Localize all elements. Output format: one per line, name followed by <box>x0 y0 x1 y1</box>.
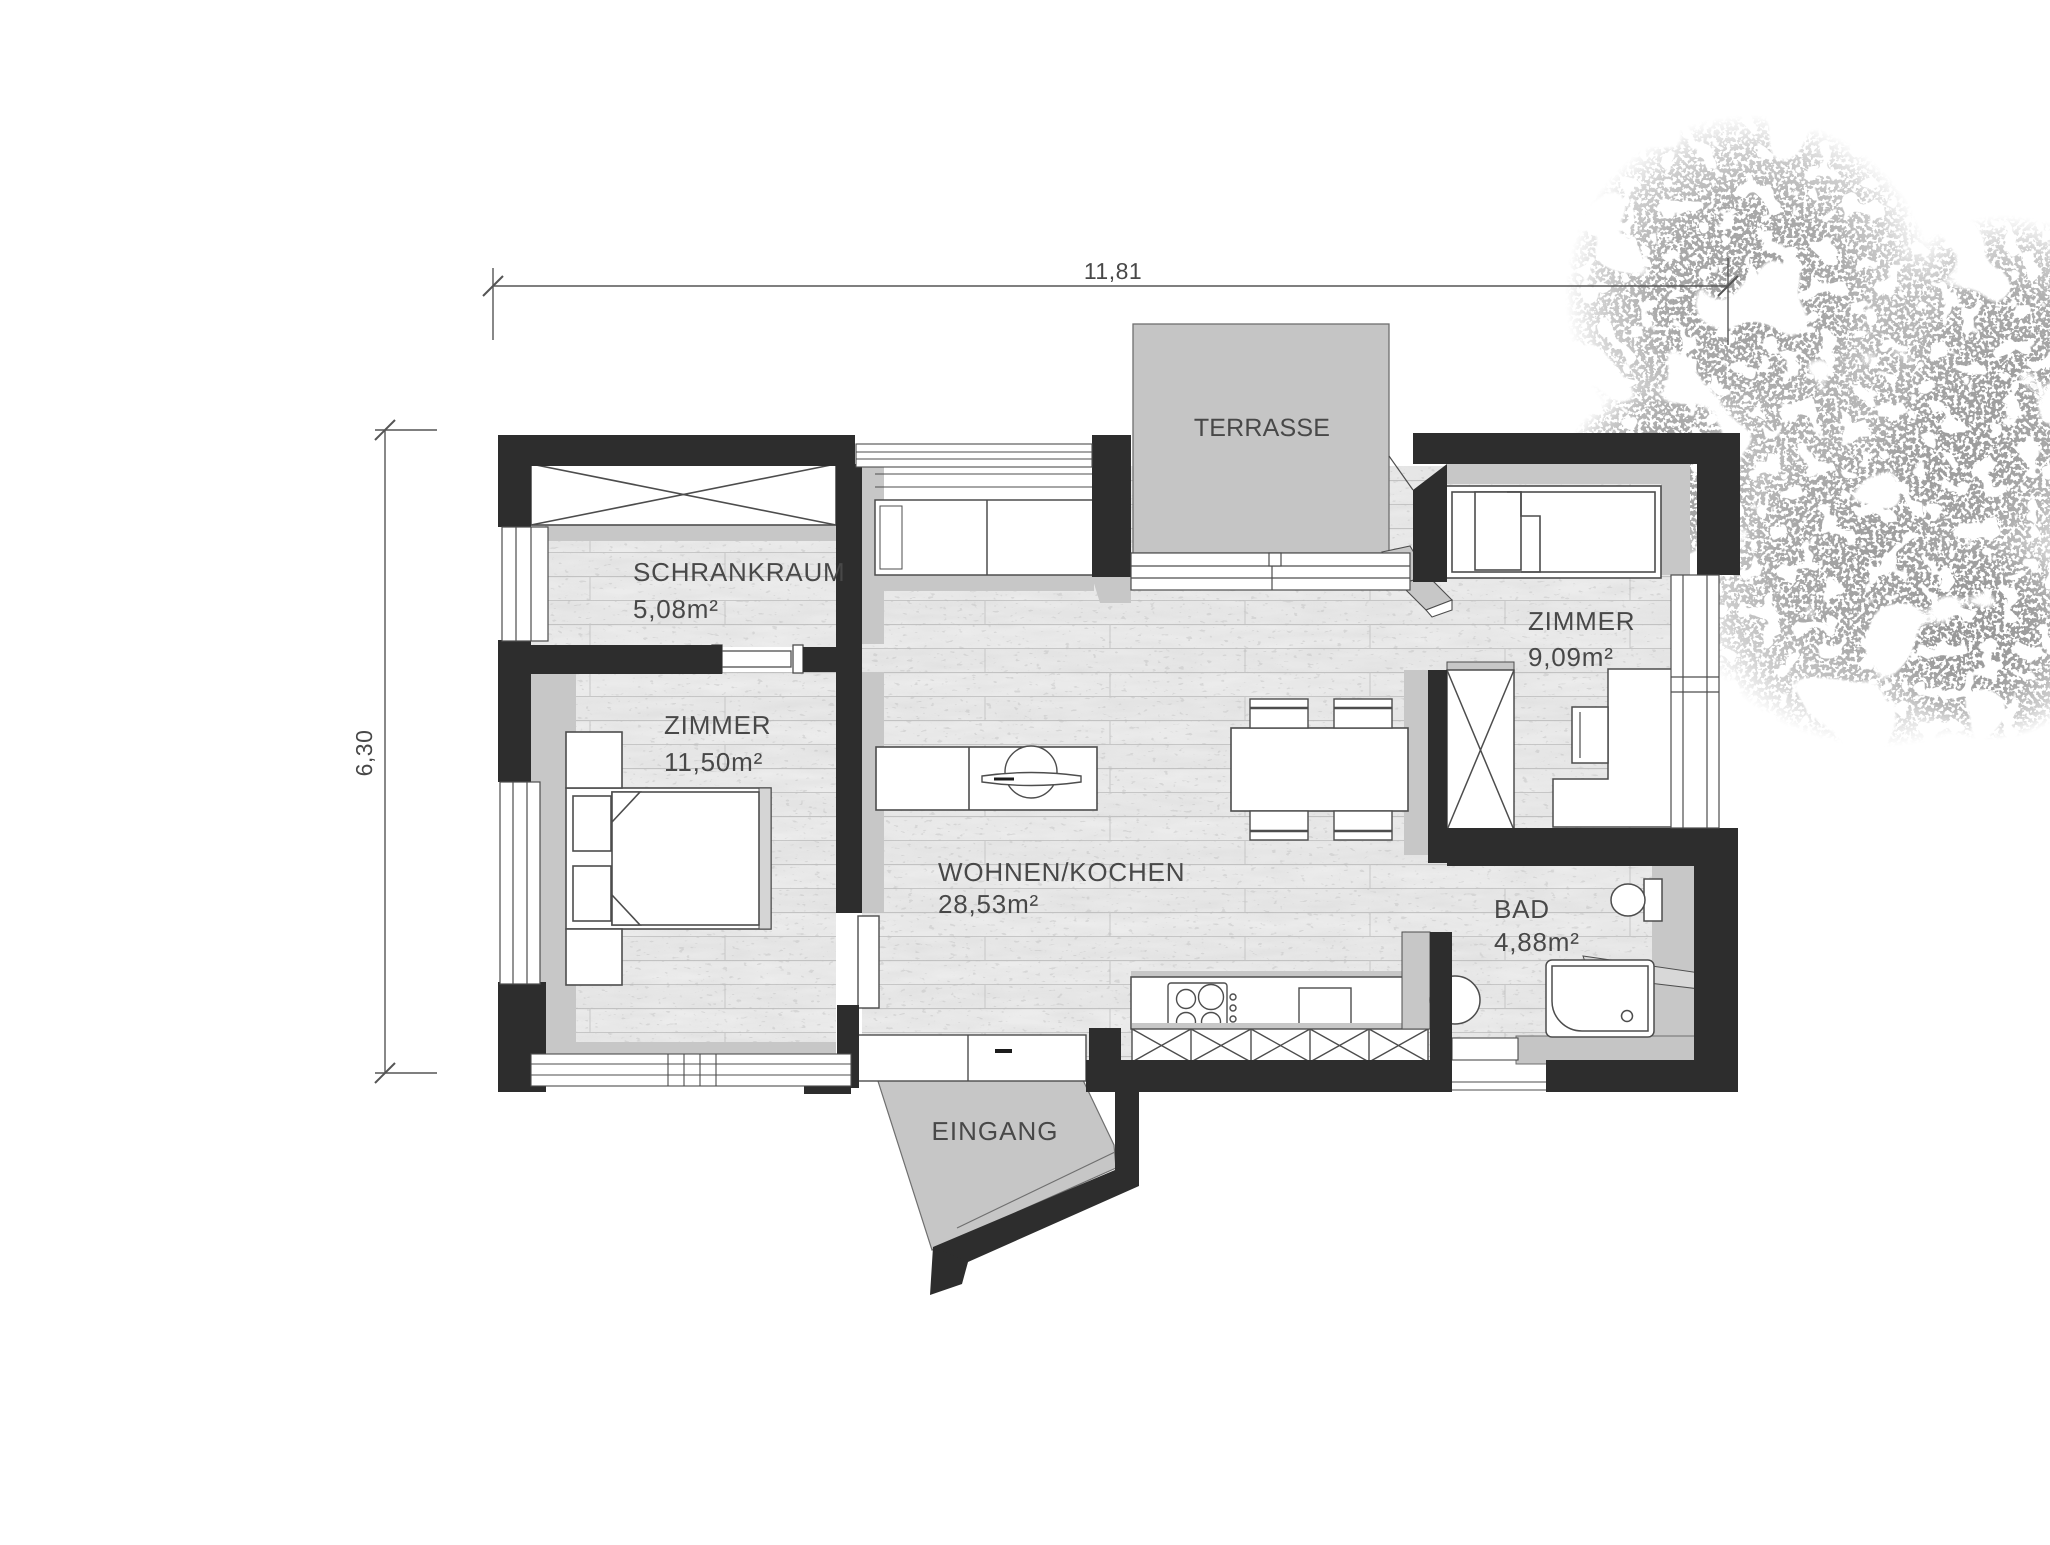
svg-text:BAD: BAD <box>1494 894 1550 924</box>
svg-text:5,08m²: 5,08m² <box>633 594 719 624</box>
svg-text:TERRASSE: TERRASSE <box>1194 414 1330 442</box>
svg-text:9,09m²: 9,09m² <box>1528 642 1614 672</box>
svg-text:SCHRANKRAUM: SCHRANKRAUM <box>633 557 845 587</box>
svg-text:ZIMMER: ZIMMER <box>664 710 771 740</box>
svg-text:ZIMMER: ZIMMER <box>1528 606 1635 636</box>
svg-text:WOHNEN/KOCHEN: WOHNEN/KOCHEN <box>938 857 1185 887</box>
svg-text:28,53m²: 28,53m² <box>938 889 1039 919</box>
svg-text:11,50m²: 11,50m² <box>664 747 763 777</box>
svg-text:6,30: 6,30 <box>351 730 377 777</box>
svg-text:EINGANG: EINGANG <box>932 1116 1059 1146</box>
svg-text:4,88m²: 4,88m² <box>1494 927 1580 957</box>
svg-text:11,81: 11,81 <box>1084 258 1142 284</box>
